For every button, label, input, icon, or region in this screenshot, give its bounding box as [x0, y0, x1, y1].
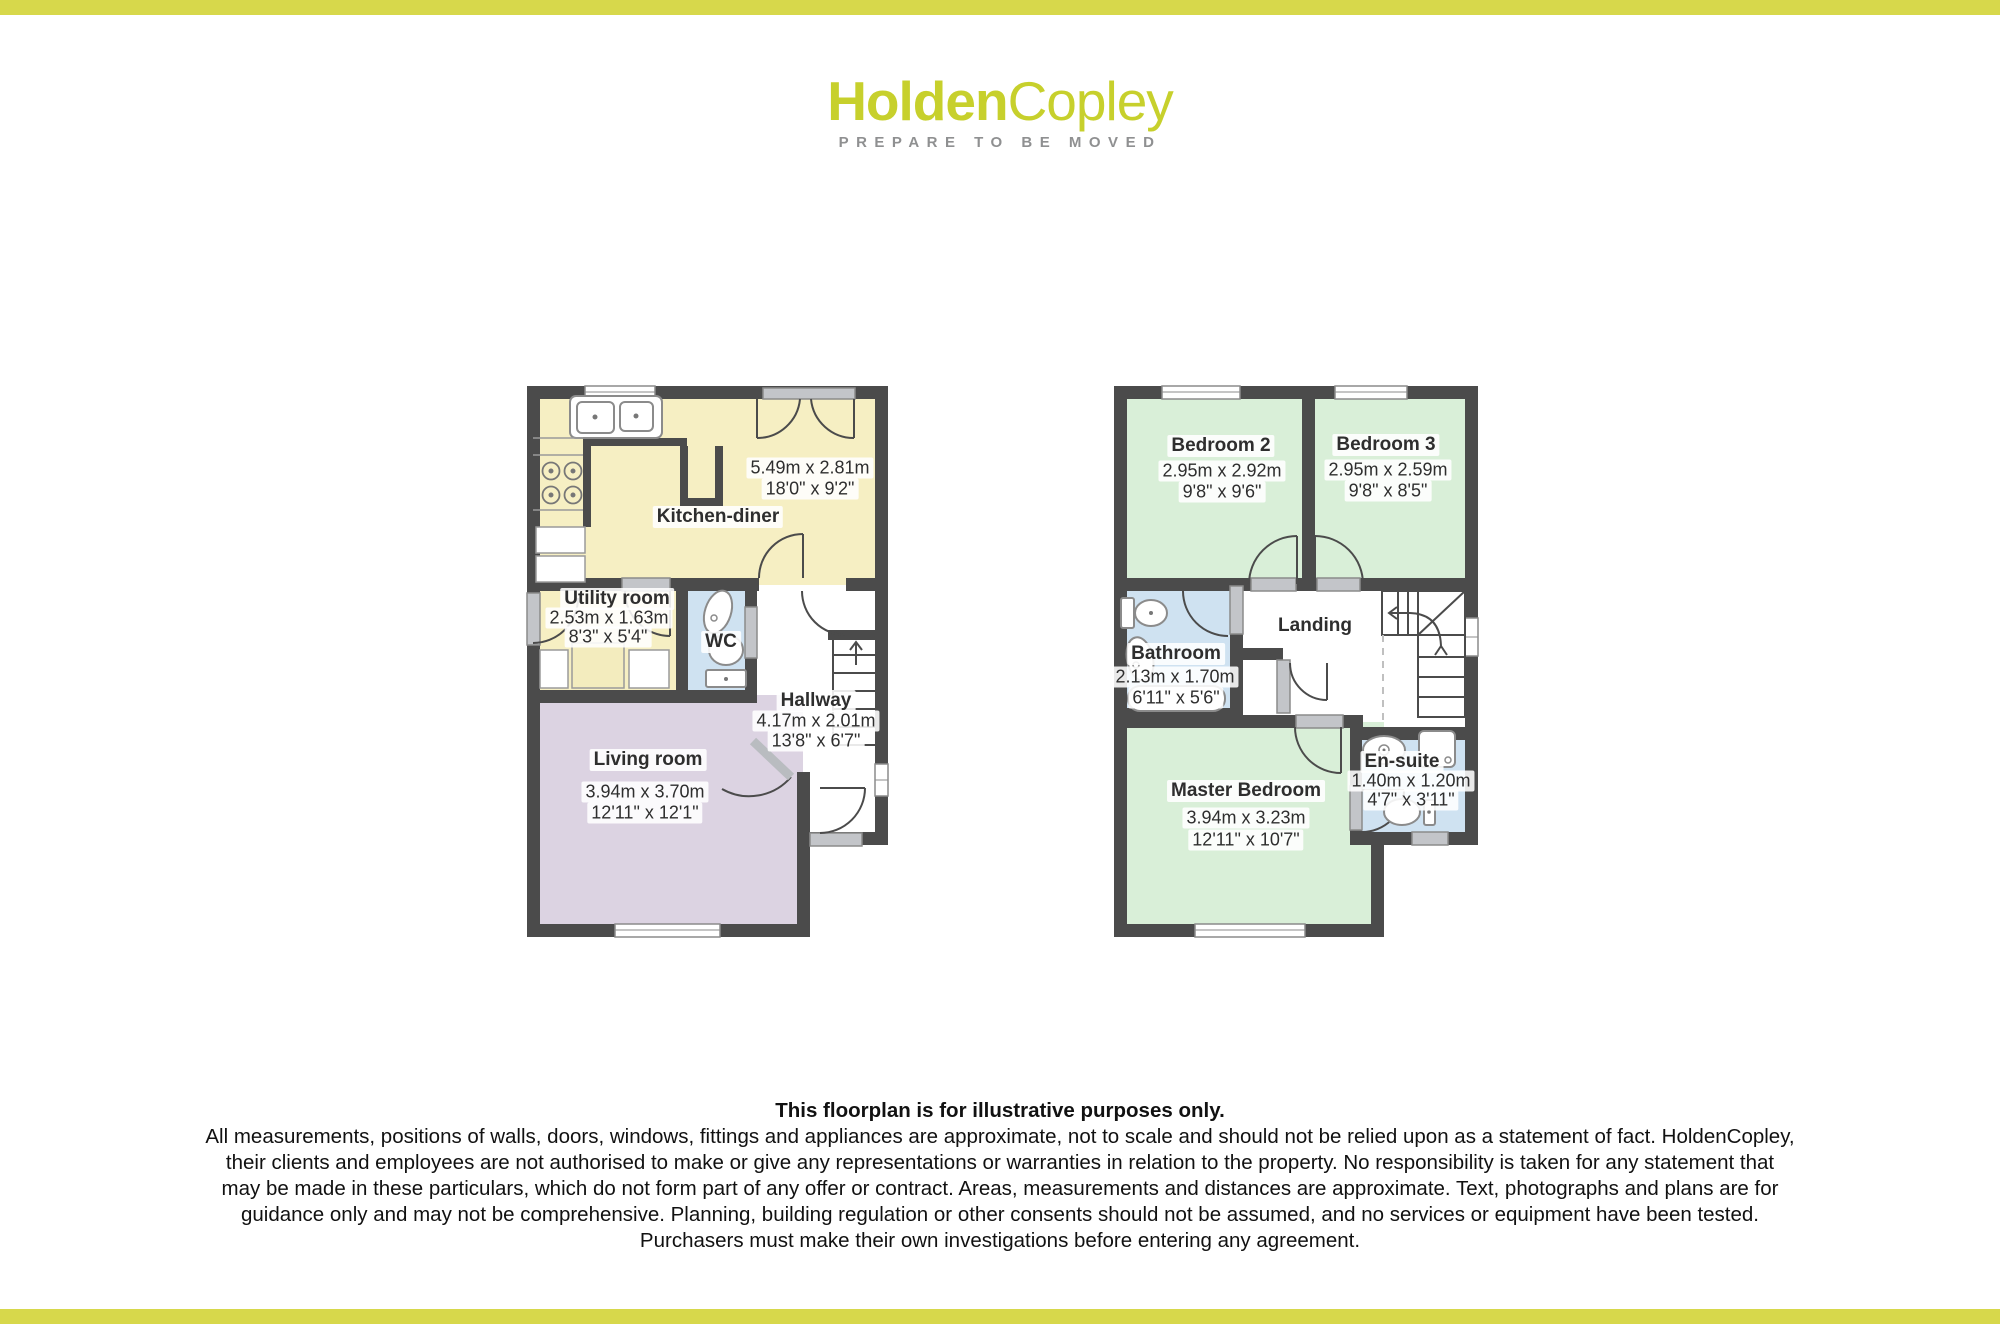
disclaimer-line: may be made in these particulars, which …: [0, 1176, 2000, 1202]
disclaimer-title: This floorplan is for illustrative purpo…: [0, 1098, 2000, 1124]
disclaimer-line: Purchasers must make their own investiga…: [0, 1228, 2000, 1254]
bedroom2-metric: 2.95m x 2.92m: [1158, 461, 1285, 482]
room-label-master: Master Bedroom: [1167, 780, 1325, 802]
living-metric: 3.94m x 3.70m: [581, 782, 708, 803]
kitchen-diner-imperial: 18'0" x 9'2": [762, 479, 859, 500]
disclaimer-line: guidance only and may not be comprehensi…: [0, 1202, 2000, 1228]
room-label-kitchen-diner: Kitchen-diner: [653, 506, 783, 528]
master-imperial: 12'11" x 10'7": [1188, 830, 1303, 851]
room-label-hallway: Hallway: [777, 690, 856, 712]
master-metric: 3.94m x 3.23m: [1182, 808, 1309, 829]
ensuite-imperial: 4'7" x 3'11": [1363, 790, 1458, 811]
bathroom-toilet-icon: [1121, 598, 1167, 628]
bathroom-imperial: 6'11" x 5'6": [1128, 688, 1223, 709]
disclaimer-line: their clients and employees are not auth…: [0, 1150, 2000, 1176]
room-label-wc: WC: [701, 631, 741, 653]
utility-metric: 2.53m x 1.63m: [545, 608, 672, 629]
kitchen-sink-icon: [570, 396, 662, 438]
bedroom3-imperial: 9'8" x 8'5": [1345, 481, 1432, 502]
utility-imperial: 8'3" x 5'4": [565, 627, 652, 648]
kitchen-diner-metric: 5.49m x 2.81m: [746, 458, 873, 479]
bedroom3-metric: 2.95m x 2.59m: [1324, 460, 1451, 481]
room-label-landing: Landing: [1274, 615, 1356, 637]
disclaimer-line: All measurements, positions of walls, do…: [0, 1124, 2000, 1150]
hallway-imperial: 13'8" x 6'7": [768, 731, 865, 752]
room-label-bedroom3: Bedroom 3: [1332, 434, 1439, 456]
room-label-bedroom2: Bedroom 2: [1167, 435, 1274, 457]
utility-appliances: [540, 643, 669, 688]
room-label-bathroom: Bathroom: [1127, 643, 1225, 665]
hallway-metric: 4.17m x 2.01m: [752, 711, 879, 732]
bedroom2-imperial: 9'8" x 9'6": [1179, 482, 1266, 503]
disclaimer: This floorplan is for illustrative purpo…: [0, 1098, 2000, 1254]
living-imperial: 12'11" x 12'1": [587, 803, 702, 824]
ensuite-metric: 1.40m x 1.20m: [1347, 771, 1474, 792]
bathroom-metric: 2.13m x 1.70m: [1111, 667, 1238, 688]
room-label-living: Living room: [590, 749, 707, 771]
